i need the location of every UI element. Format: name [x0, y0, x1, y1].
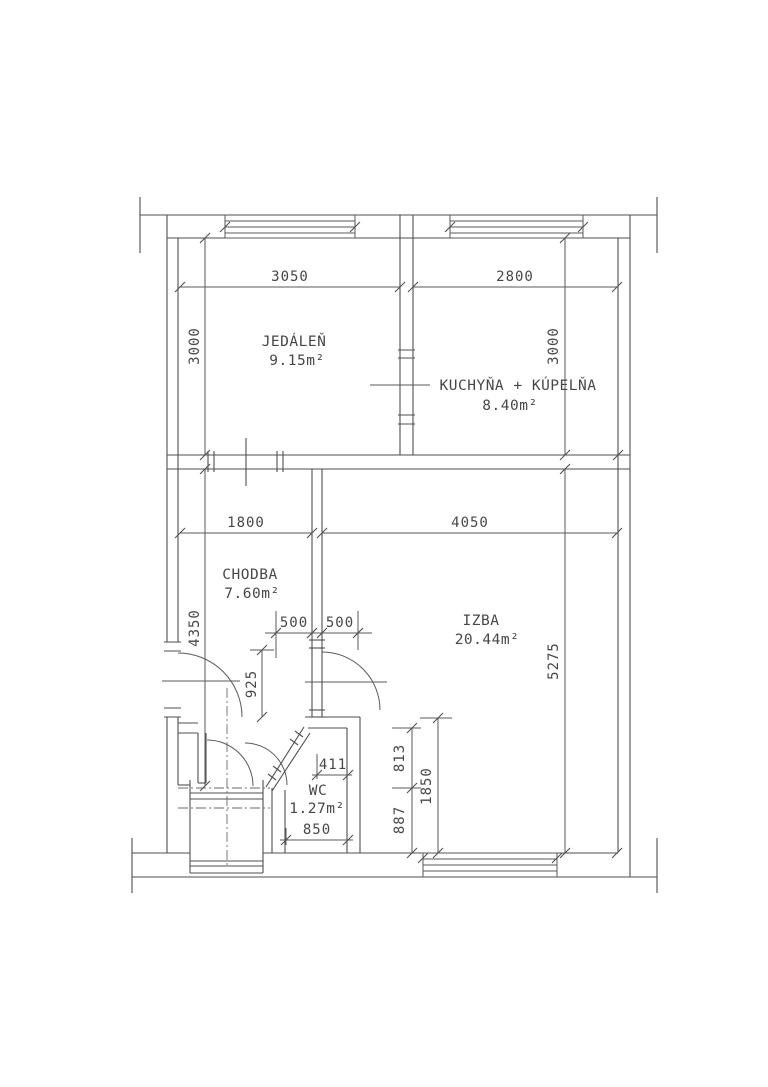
windows — [225, 215, 583, 877]
dim-813: 813 — [392, 744, 408, 772]
dim-500-left: 500 — [280, 615, 308, 631]
stairs-block — [178, 688, 270, 873]
wc-area: 1.27m² — [289, 801, 344, 817]
kuchyna-area: 8.40m² — [482, 398, 537, 414]
entrance-door — [162, 642, 242, 717]
wc-label: WC — [309, 783, 327, 799]
dim-3000-left: 3000 — [187, 327, 203, 365]
window-izba — [423, 853, 557, 877]
dim-411: 411 — [319, 757, 347, 773]
dim-3000-right: 3000 — [546, 327, 562, 365]
exterior-walls — [132, 215, 657, 877]
corner-ticks — [132, 197, 657, 893]
vestibule-door — [198, 733, 253, 786]
floor-plan-page: JEDÁLEŇ 9.15m² KUCHYŇA + KÚPELŇA 8.40m² … — [0, 0, 768, 1087]
dim-5275: 5275 — [546, 642, 562, 680]
window-kuchyna — [450, 215, 583, 238]
dim-4050: 4050 — [451, 515, 489, 531]
dim-887: 887 — [392, 806, 408, 834]
izba-label: IZBA — [463, 613, 500, 629]
jedalen-label: JEDÁLEŇ — [262, 332, 327, 350]
dim-3050: 3050 — [271, 269, 309, 285]
dim-500-right: 500 — [326, 615, 354, 631]
window-jedalen — [225, 215, 355, 238]
izba-area: 20.44m² — [455, 632, 520, 648]
jedalen-area: 9.15m² — [269, 353, 324, 369]
dim-925: 925 — [244, 670, 260, 698]
dim-1800: 1800 — [227, 515, 265, 531]
floor-plan-drawing: JEDÁLEŇ 9.15m² KUCHYŇA + KÚPELŇA 8.40m² … — [0, 0, 768, 1087]
dim-2800: 2800 — [496, 269, 534, 285]
izba-door — [305, 652, 387, 710]
dim-1850: 1850 — [419, 767, 435, 805]
chodba-label: CHODBA — [222, 567, 277, 583]
kuchyna-label: KUCHYŇA + KÚPELŇA — [440, 376, 597, 394]
dim-850: 850 — [303, 822, 331, 838]
dimension-labels: 3050 2800 3000 3000 1800 4050 4350 5275 … — [187, 269, 562, 838]
doors — [162, 385, 430, 786]
dim-4350: 4350 — [187, 609, 203, 647]
room-labels: JEDÁLEŇ 9.15m² KUCHYŇA + KÚPELŇA 8.40m² … — [222, 332, 596, 817]
chodba-area: 7.60m² — [224, 586, 279, 602]
